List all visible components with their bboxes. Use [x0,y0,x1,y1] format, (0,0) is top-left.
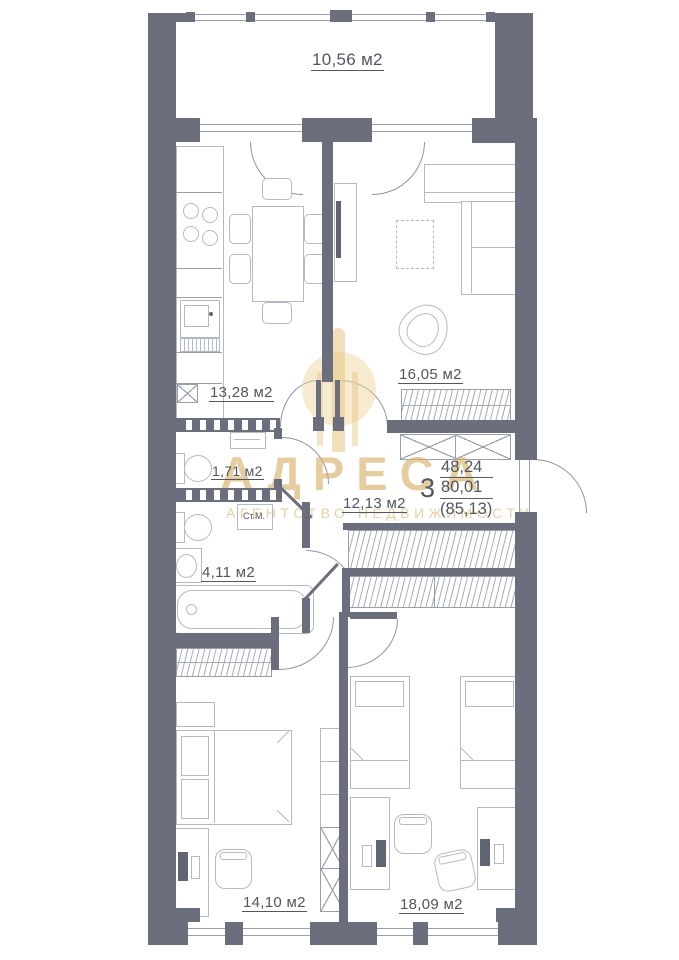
wall-hall-closet-top [343,523,515,530]
window-bedroom2 [428,928,498,929]
chair-back [399,817,427,825]
monitor [480,839,490,866]
door-hinge-block [333,417,344,431]
bedroom2-area-label: 18,09 м2 [399,896,464,914]
glazing-mullion [186,12,195,22]
keyboard [494,844,504,864]
balcony-glazing-line [176,14,533,15]
wc-area-label: 1,71 м2 [211,463,264,480]
counter-divider [176,297,222,298]
hallway-area-label: 12,13 м2 [342,495,407,513]
dining-chair [262,302,292,324]
nightstand [176,702,215,727]
bed-blanket-line [214,730,215,823]
toilet-bowl [184,514,212,541]
wall-bath-bottom [148,633,279,648]
stove-burner [202,230,218,246]
apartment-summary: 3 48,24 80,01 (85,13) [420,458,493,518]
armchair [387,290,462,366]
living-area-label: 16,05 м2 [398,366,463,384]
bed-pillow [181,779,209,819]
wall-wc-right-top [274,428,282,439]
wall-right-lower [515,512,537,945]
office-chair [394,814,432,854]
chair-back [220,852,247,860]
door-hinge-block [313,417,324,431]
blanket-fold [461,748,473,760]
rooms-count: 3 [420,475,435,502]
bedroom2-door-arc [346,619,398,668]
kitchen-sink-basin [184,305,209,327]
wardrobe-divider [434,577,435,607]
wall-bottom-seg4 [413,922,428,945]
wall-bottom-left-corner [148,908,200,922]
window-bedroom2 [428,935,498,936]
balcony-window-living [372,124,472,125]
wall-wc-bath-divider [176,488,282,502]
blanket-fold [351,748,363,760]
hall-shelf-x [455,434,511,460]
stove-burner [183,226,199,242]
wall-bottom-right-corner [496,908,537,922]
living-wardrobe [401,389,511,422]
wall-balcony-right [495,13,533,118]
entrance-door-frame [529,460,530,512]
window-bedroom2 [377,935,413,936]
wc-door-arc [282,437,329,484]
bath-sink-basin [176,554,197,578]
bedroom1-door-panel [271,617,279,670]
tv [336,201,341,258]
chair-back [438,851,467,865]
keyboard [362,845,372,867]
wall-balcony-divider-left [148,118,200,142]
stove-burner [202,207,218,223]
keyboard [191,856,200,879]
monitor [178,852,188,881]
sofa-side [461,201,517,295]
hall-wardrobe-1 [348,530,516,570]
office-chair [215,849,252,889]
sofa-line [424,192,515,193]
wardrobe-rail [402,405,510,406]
balcony-area-label: 10,56 м2 [311,50,384,71]
wall-bedroom-divider [339,612,348,922]
wall-right-step [472,118,537,143]
bedroom1-area-label: 14,10 м2 [242,894,307,912]
washing-machine-label: Ст.М. [237,504,271,528]
bed-blanket-line [350,760,408,761]
dining-chair [262,178,292,200]
counter-divider [176,268,222,269]
wall-right-upper [515,143,537,460]
toilet-bowl [184,455,212,482]
dining-table [252,206,304,302]
vent-icon [177,384,198,403]
balcony-window-living [372,131,472,132]
monitor [376,840,386,867]
balcony-window-kitchen [200,131,302,132]
glazing-mullion [330,10,352,22]
wall-hall-closet-mid [343,568,515,576]
entrance-door-frame [519,460,520,512]
counter-divider [176,352,222,353]
glazing-mullion [486,12,495,22]
kitchen-counter [176,146,224,420]
window-bedroom1 [188,935,225,936]
total-area-value: (85,13) [440,499,493,518]
bathroom-area-label: 4,11 м2 [201,564,256,582]
dining-chair [229,214,251,244]
window-bedroom1 [188,928,225,929]
wall-bottom-seg2 [225,922,243,945]
wc-sink-line [234,439,260,440]
wall-bottom-seg3 [310,922,377,945]
floor-plan: 13,28 м2 16,05 м2 1,71 м2 Ст.М. 4,11 м2 … [0,0,679,960]
bedroom2-door-panel [350,612,397,619]
wc-sink [230,432,266,449]
living-area-value: 48,24 [440,458,493,478]
apartment-area-value: 80,01 [440,478,493,498]
wardrobe-rail [177,662,271,663]
entrance-door-arc [533,459,587,513]
window-bedroom1 [243,928,310,929]
wall-bottom-seg5 [498,922,537,945]
balcony-window-kitchen [200,124,302,125]
wall-bottom-seg1 [148,922,188,945]
wall-bath-right-bottom [302,598,310,633]
kitchen-faucet [209,312,213,316]
bathtub-drain [186,604,197,615]
balcony-door-arc-living [372,142,425,195]
coffee-table [396,220,434,269]
wall-left [148,13,176,945]
dining-chair [229,254,251,284]
wall-kitchen-living [322,142,333,382]
wall-living-bottom [387,420,515,433]
bed-blanket-line [460,760,518,761]
wall-bath-right-top [302,502,310,548]
balcony-glazing-line [176,20,533,21]
blanket-fold [277,731,289,743]
stove-burner [183,203,199,219]
kitchen-drainboard [180,338,220,352]
bedroom1-wardrobe [176,648,272,677]
wall-bedroom2-west-stub [342,568,350,617]
window-bedroom1 [243,935,310,936]
office-chair [432,847,477,893]
living-door-arc [340,380,388,427]
bed-pillow [181,736,209,776]
glazing-mullion [426,12,435,22]
kitchen-area-label: 13,28 м2 [209,384,274,402]
glazing-mullion [246,12,255,22]
bed-pillow [355,681,404,707]
hall-wardrobe-2 [348,576,516,608]
bed-pillow [465,681,514,707]
counter-divider [176,192,222,193]
wall-balcony-divider-mid [302,118,372,142]
hall-shelf-x [400,434,458,460]
sofa-line [471,247,515,248]
blanket-fold [277,810,289,822]
sofa-top [424,164,517,203]
wall-kitchen-shaft [176,418,280,432]
window-bedroom2 [377,928,413,929]
